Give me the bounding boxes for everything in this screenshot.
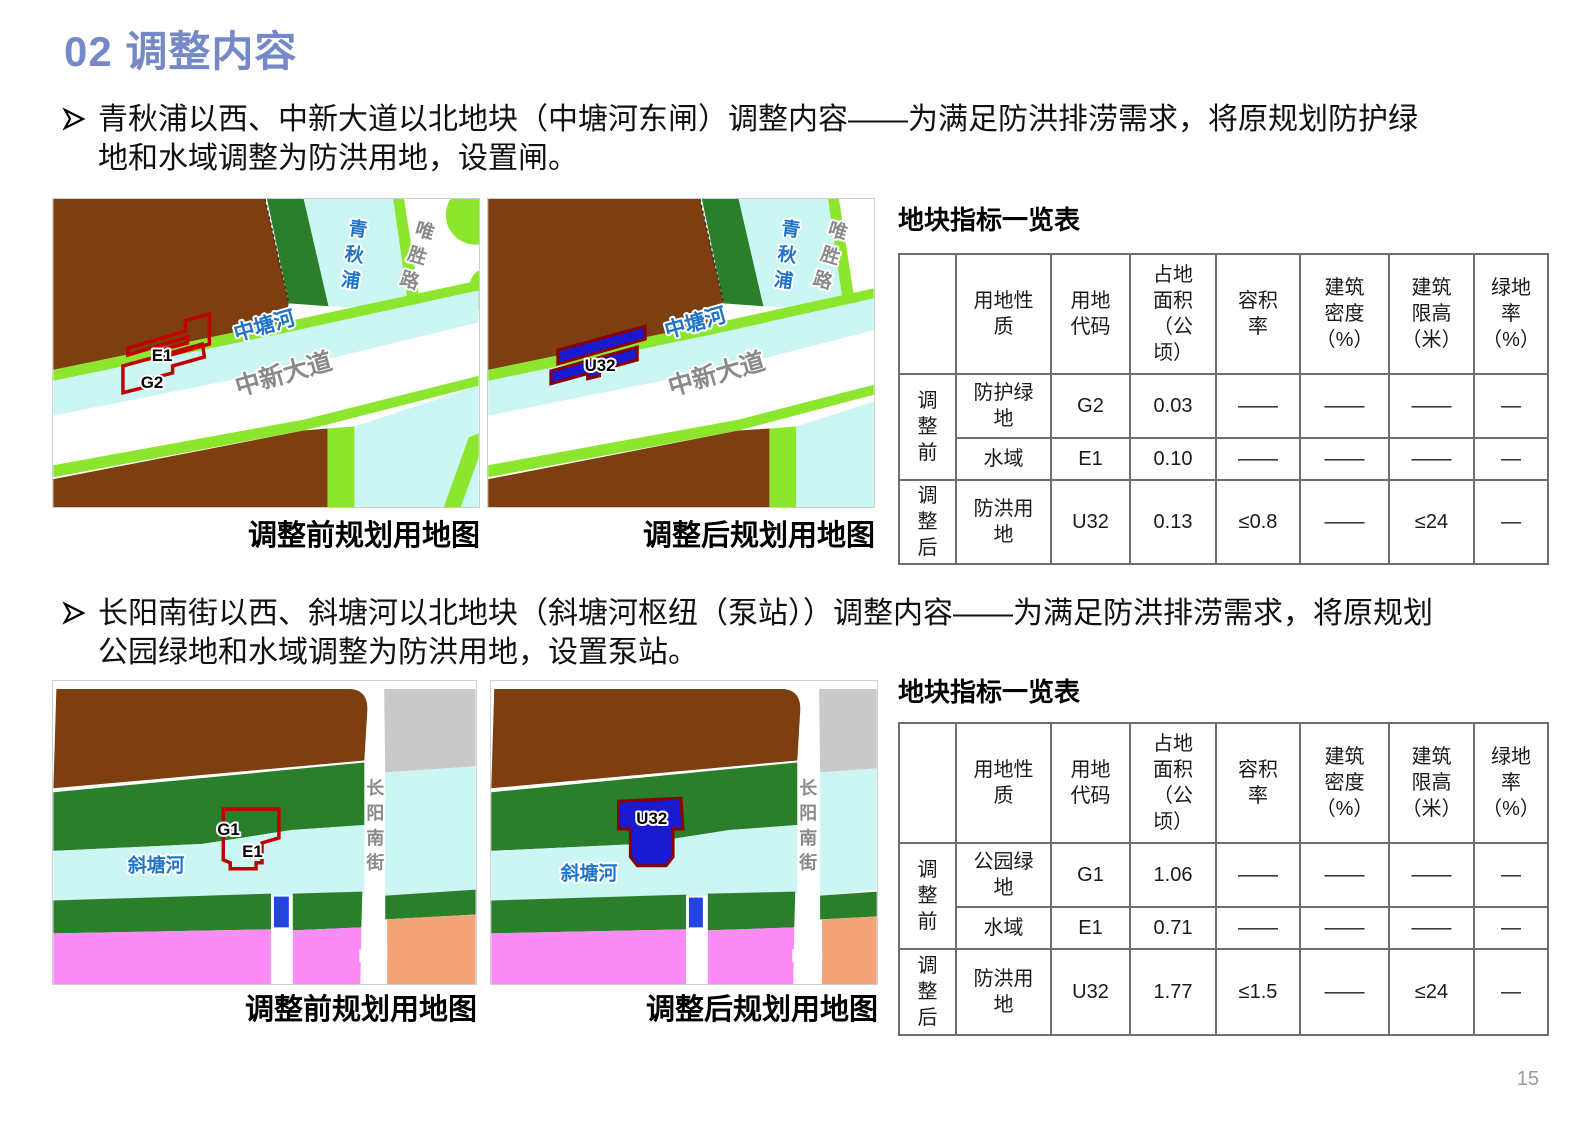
header-area: 占地 面积 （公 顷） — [1130, 254, 1216, 374]
cell-code: G1 — [1051, 843, 1130, 907]
cell-use: 公园绿 地 — [956, 843, 1051, 907]
indicator-table-2: 用地性 质 用地 代码 占地 面积 （公 顷） 容积 率 建筑 密度 （%） 建… — [898, 722, 1549, 1036]
group-before: 调 整 前 — [899, 843, 956, 949]
header-code: 用地 代码 — [1051, 254, 1130, 374]
parcel-label-u32: U32 — [636, 809, 667, 828]
cell-density: —— — [1300, 374, 1389, 438]
table-row: 水域 E1 0.10 —— —— —— — — [899, 438, 1548, 480]
road-label-changyang-south-street: 长阳南街 — [364, 778, 385, 878]
table-header-row: 用地性 质 用地 代码 占地 面积 （公 顷） 容积 率 建筑 密度 （%） 建… — [899, 723, 1548, 843]
cell-use: 防洪用 地 — [956, 949, 1051, 1035]
header-limit: 建筑 限高 （米） — [1389, 254, 1474, 374]
cell-use: 水域 — [956, 907, 1051, 949]
bullet-item-2: 长阳南街以西、斜塘河以北地块（斜塘河枢纽（泵站））调整内容——为满足防洪排涝需求… — [62, 594, 1492, 672]
river-label-xietanghe: 斜塘河 — [127, 854, 185, 876]
cell-green: — — [1474, 907, 1548, 949]
header-far: 容积 率 — [1216, 723, 1300, 843]
header-blank — [899, 254, 956, 374]
table-header-row: 用地性 质 用地 代码 占地 面积 （公 顷） 容积 率 建筑 密度 （%） 建… — [899, 254, 1548, 374]
cell-use: 防护绿 地 — [956, 374, 1051, 438]
terrain — [53, 681, 475, 984]
parcel-label-g2: G2 — [141, 373, 164, 392]
header-limit: 建筑 限高 （米） — [1389, 723, 1474, 843]
table-row: 调 整 后 防洪用 地 U32 1.77 ≤1.5 —— ≤24 — — [899, 949, 1548, 1035]
indicator-table-1: 用地性 质 用地 代码 占地 面积 （公 顷） 容积 率 建筑 密度 （%） 建… — [898, 253, 1549, 565]
cell-limit: —— — [1389, 438, 1474, 480]
cell-use: 防洪用 地 — [956, 480, 1051, 564]
bullet-text: 长阳南街以西、斜塘河以北地块（斜塘河枢纽（泵站））调整内容——为满足防洪排涝需求… — [98, 594, 1436, 672]
header-area: 占地 面积 （公 顷） — [1130, 723, 1216, 843]
cell-density: —— — [1300, 480, 1389, 564]
cell-far: ≤1.5 — [1216, 949, 1300, 1035]
planning-map-before-2: G1 E1 斜塘河 长阳南街 — [52, 680, 477, 985]
cell-green: — — [1474, 480, 1548, 564]
cell-limit: ≤24 — [1389, 480, 1474, 564]
planning-map-before-1: E1 G2 中塘河 中新大道 青秋浦 唯胜路 — [52, 198, 480, 508]
arrow-bullet-icon — [62, 594, 98, 630]
cell-limit: —— — [1389, 843, 1474, 907]
terrain — [491, 681, 876, 984]
header-blank — [899, 723, 956, 843]
group-before: 调 整 前 — [899, 374, 956, 480]
bullet-text: 青秋浦以西、中新大道以北地块（中塘河东闸）调整内容——为满足防洪排涝需求，将原规… — [98, 100, 1436, 178]
map-caption-after-1: 调整后规划用地图 — [487, 512, 875, 554]
cell-density: —— — [1300, 438, 1389, 480]
parcel-label-u32: U32 — [585, 356, 616, 375]
map-caption-before-1: 调整前规划用地图 — [52, 512, 480, 554]
river-label-xietanghe: 斜塘河 — [560, 862, 618, 884]
header-density: 建筑 密度 （%） — [1300, 723, 1389, 843]
cell-green: — — [1474, 843, 1548, 907]
cell-far: —— — [1216, 374, 1300, 438]
table-title-1: 地块指标一览表 — [898, 200, 1080, 237]
cell-area: 0.71 — [1130, 907, 1216, 949]
parcel-label-e1: E1 — [152, 346, 173, 365]
group-after: 调 整 后 — [899, 480, 956, 564]
parcel-label-e1: E1 — [242, 842, 263, 861]
cell-green: — — [1474, 949, 1548, 1035]
cell-code: U32 — [1051, 949, 1130, 1035]
cell-green: — — [1474, 438, 1548, 480]
page-title: 02 调整内容 — [64, 18, 297, 79]
header-far: 容积 率 — [1216, 254, 1300, 374]
header-code: 用地 代码 — [1051, 723, 1130, 843]
planning-map-after-1: U32 中塘河 中新大道 青秋浦 唯胜路 — [487, 198, 875, 508]
header-density: 建筑 密度 （%） — [1300, 254, 1389, 374]
group-after: 调 整 后 — [899, 949, 956, 1035]
cell-far: —— — [1216, 907, 1300, 949]
arrow-bullet-icon — [62, 100, 98, 136]
cell-density: —— — [1300, 843, 1389, 907]
header-green: 绿地 率 （%） — [1474, 254, 1548, 374]
cell-code: G2 — [1051, 374, 1130, 438]
cell-limit: ≤24 — [1389, 949, 1474, 1035]
table-row: 调 整 前 公园绿 地 G1 1.06 —— —— —— — — [899, 843, 1548, 907]
parcel-label-g1: G1 — [217, 820, 240, 839]
cell-far: —— — [1216, 438, 1300, 480]
cell-density: —— — [1300, 907, 1389, 949]
cell-green: — — [1474, 374, 1548, 438]
header-use: 用地性 质 — [956, 254, 1051, 374]
planning-map-after-2: U32 斜塘河 长阳南街 — [490, 680, 878, 985]
cell-area: 0.13 — [1130, 480, 1216, 564]
cell-limit: —— — [1389, 374, 1474, 438]
cell-area: 1.06 — [1130, 843, 1216, 907]
cell-code: E1 — [1051, 907, 1130, 949]
map-caption-before-2: 调整前规划用地图 — [52, 986, 477, 1028]
header-use: 用地性 质 — [956, 723, 1051, 843]
cell-area: 0.03 — [1130, 374, 1216, 438]
table-title-2: 地块指标一览表 — [898, 672, 1080, 709]
road-label-changyang-south-street: 长阳南街 — [797, 778, 818, 878]
cell-limit: —— — [1389, 907, 1474, 949]
cell-area: 0.10 — [1130, 438, 1216, 480]
cell-area: 1.77 — [1130, 949, 1216, 1035]
header-green: 绿地 率 （%） — [1474, 723, 1548, 843]
cell-far: ≤0.8 — [1216, 480, 1300, 564]
page-number: 15 — [1517, 1068, 1539, 1091]
cell-use: 水域 — [956, 438, 1051, 480]
cell-code: U32 — [1051, 480, 1130, 564]
cell-far: —— — [1216, 843, 1300, 907]
table-row: 调 整 后 防洪用 地 U32 0.13 ≤0.8 —— ≤24 — — [899, 480, 1548, 564]
bullet-item-1: 青秋浦以西、中新大道以北地块（中塘河东闸）调整内容——为满足防洪排涝需求，将原规… — [62, 100, 1492, 178]
terrain — [488, 199, 873, 507]
table-row: 水域 E1 0.71 —— —— —— — — [899, 907, 1548, 949]
map-caption-after-2: 调整后规划用地图 — [490, 986, 878, 1028]
cell-code: E1 — [1051, 438, 1130, 480]
cell-density: —— — [1300, 949, 1389, 1035]
table-row: 调 整 前 防护绿 地 G2 0.03 —— —— —— — — [899, 374, 1548, 438]
